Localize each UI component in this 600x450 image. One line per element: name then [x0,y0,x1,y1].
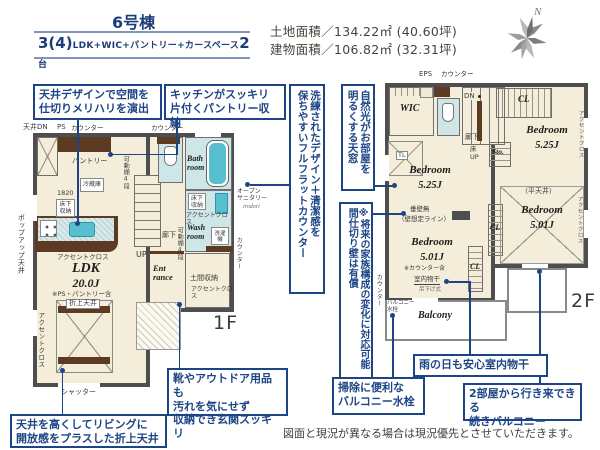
label-accent-cloth-bed4: アクセントクロス [576,196,583,254]
wash-counter [206,246,232,252]
label-hallway-1f: 廊下 [162,231,176,239]
leader-dot-skylight [392,183,397,188]
leader-dot-coffered [60,368,65,373]
label-dim-1820: 1820 [57,190,74,198]
porch [136,302,181,350]
room-bedroom1-label: Bedroom [514,124,580,136]
leader-dot-flat-counter [245,182,250,187]
label-cl-top: CL [518,95,530,105]
label-sanitary-brand: irodori [243,204,260,211]
label-movable-shelf-1: 可動棚4段 [122,156,129,202]
dn-dot [478,95,481,98]
label-sto: Sto. [492,148,504,156]
washer-box: 洗濯機 [211,227,229,245]
label-ceiling-dn: 天井DN [23,123,48,131]
balcony-right [507,268,567,313]
label-dn: DN [464,92,475,100]
underfloor-storage-box-wash: 床下 収納 [188,193,206,210]
balcony-door [412,298,438,302]
callout-balcony-faucet: 掃除に便利な バルコニー水栓 [332,377,425,415]
building-area: 建物面積／106.82㎡ (32.31坪) [270,39,457,58]
label-movable-shelf-2: 可動棚4段 [176,227,183,273]
leader-flat-counter [250,184,289,186]
sink-icon [69,222,95,237]
room-bath-label: Bath room [187,155,204,173]
wall-stub [452,211,470,220]
label-accent-cloth-doma: アクセントクロス [191,286,233,300]
underfloor-storage-box-kitchen: 床下 収納 [56,199,75,217]
compass-north-label: N [533,6,542,18]
room-bedroom3-size: 5.01J [398,252,466,264]
leader-entrance-storage [179,306,181,368]
plan-spec: 3(4)LDK+WIC+パントリー+カースペース2台 [38,33,252,56]
leader-skylight [375,185,393,187]
leader-dot-indoor-dry [444,279,449,284]
room-bedroom4-size: 5.01J [507,220,577,232]
label-counter-bed3: カウンター [375,274,382,312]
leader-dot-entrance-storage [177,302,182,307]
callout-flat-counter: 洗練されたデザイン＋清潔感を 保ちやすいフルフラットカウンター [289,84,325,294]
room-ldk-size: 20.0J [55,277,117,290]
room-entrance-label: Ent rance [153,264,173,283]
label-floor-up: 床 UP [470,146,479,162]
callout-skylight: 自然光がお部屋を 明るくする天窓 [341,84,375,191]
callout-indoor-drying: 雨の日も安心室内物干 [413,354,548,377]
callout-pantry-storage: キッチンがスッキリ 片付くパントリー収納 [164,84,286,120]
leader-indoor-dry-h [449,281,470,283]
floor2-label: 2F [571,290,596,312]
counter-2f [434,87,450,97]
callout-continuous-balcony: 2部屋から行き来できる 続きバルコニー [463,383,582,421]
room-balcony-label: Balcony [418,310,452,321]
room-ldk: LDK [55,261,117,276]
label-counter-wash-right: カウンター [235,237,242,279]
room-wash-label: Wash room [187,224,205,242]
room-bedroom1-size: 5.25J [514,140,580,152]
title-rule-bottom [34,57,250,59]
label-bed3-note: ※カウンター含 [404,265,445,272]
floorplan-sheet: 6号棟 3(4)LDK+WIC+パントリー+カースペース2台 土地面積／134.… [0,0,600,450]
label-counter-kitchen-top: カウンター [71,125,104,133]
label-balcony-faucet: バルコニー 水栓 [387,300,414,313]
leader-dot-balcony-faucet [390,313,395,318]
label-cl-mid1: CL [490,224,500,233]
toilet-icon-2f [442,103,454,122]
label-popup-ceiling: ポップアップ天井 [17,214,25,282]
label-accent-cloth-bed1: アクセントクロス [577,110,584,168]
label-indoor-dry: 室内物干 [414,276,440,285]
window-shutter [58,383,100,387]
label-flat-ceiling: （平天井） [521,187,556,195]
callout-partition-free: ※将来の家族構成の変化に対応可能 間仕切り壁は有償 [339,202,373,384]
label-assumed-wall-line: （壁想定ライン） [398,216,450,224]
label-ldk-note: ※PS・パントリー含 [52,291,111,299]
label-up: UP [136,250,147,260]
pantry-counter [58,137,111,152]
window [33,195,37,221]
closet-crossbox [37,137,58,176]
leader-partition [373,213,403,215]
window [584,118,588,148]
window [385,155,389,181]
label-accent-cloth-ldk-wall: アクセントクロス [36,312,44,372]
leader-ceiling-design [77,120,79,222]
balcony-door [522,264,548,268]
plan-spec-count: 2 [239,34,249,52]
floor1-label: 1F [213,312,238,334]
ceiling-beam [58,357,110,364]
leader-pantry-h [112,154,177,156]
window [195,133,221,137]
plan-spec-detail: LDK+WIC+パントリー+カースペース [73,41,240,51]
leader-dot-continuous-balcony [537,269,542,274]
room-bedroom3-label: Bedroom [398,236,466,248]
plan-spec-unit: 台 [38,60,47,70]
vanity-icon [215,193,228,214]
label-open-sanitary: オープン サニタリー [237,188,267,202]
room-bedroom4-label: Bedroom [507,204,577,216]
leader-dot-partition [401,211,406,216]
label-shutter: シャッター [61,388,96,396]
leader-coffered [62,372,64,414]
label-hallway-2f: 廊下 [465,133,479,141]
label-cl-mid2: CL [470,263,480,272]
label-counter-2f-top: カウンター [441,71,474,79]
label-doma-storage: 土間収納 [190,274,218,282]
plan-spec-number: 3(4) [38,34,73,52]
leader-balcony-faucet [392,317,394,377]
fridge-box: 冷蔵庫 [80,178,104,192]
label-dry-type: 吊下げ式 [419,287,441,294]
land-area: 土地面積／134.22㎡ (40.60坪) [270,21,457,40]
stairs-1f [134,175,161,247]
callout-entrance-storage: 靴やアウトドア用品も 汚れを気にせず 収納でき玄関スッキリ [167,368,288,416]
bathtub-water [209,143,226,184]
leader-indoor-dry-v [469,281,471,355]
label-eps: EPS [419,70,432,78]
leader-dot-pantry [108,152,113,157]
building-number: 6号棟 [112,9,155,33]
callout-coffered-ceiling: 天井を高くしてリビングに 開放感をプラスした折上天井 [10,414,167,448]
stove-icon [40,220,57,237]
compass-icon: N [504,5,550,63]
label-coffered: 折上天井 [66,299,100,309]
eps-shaft [420,87,433,98]
room-wic-label: WIC [400,103,419,114]
window [584,210,588,238]
room-bedroom2-label: Bedroom [395,164,465,176]
label-ps: PS [57,123,66,131]
label-no-hanging-wall: 垂壁無 [410,206,430,214]
room-bedroom2-size: 5.25J [395,180,465,192]
callout-ceiling-design: 天井デザインで空間を 仕切りメリハリを演出 [33,84,162,120]
leader-dot-ceiling-design [75,221,80,226]
label-skylight-tl: TL [396,151,408,160]
